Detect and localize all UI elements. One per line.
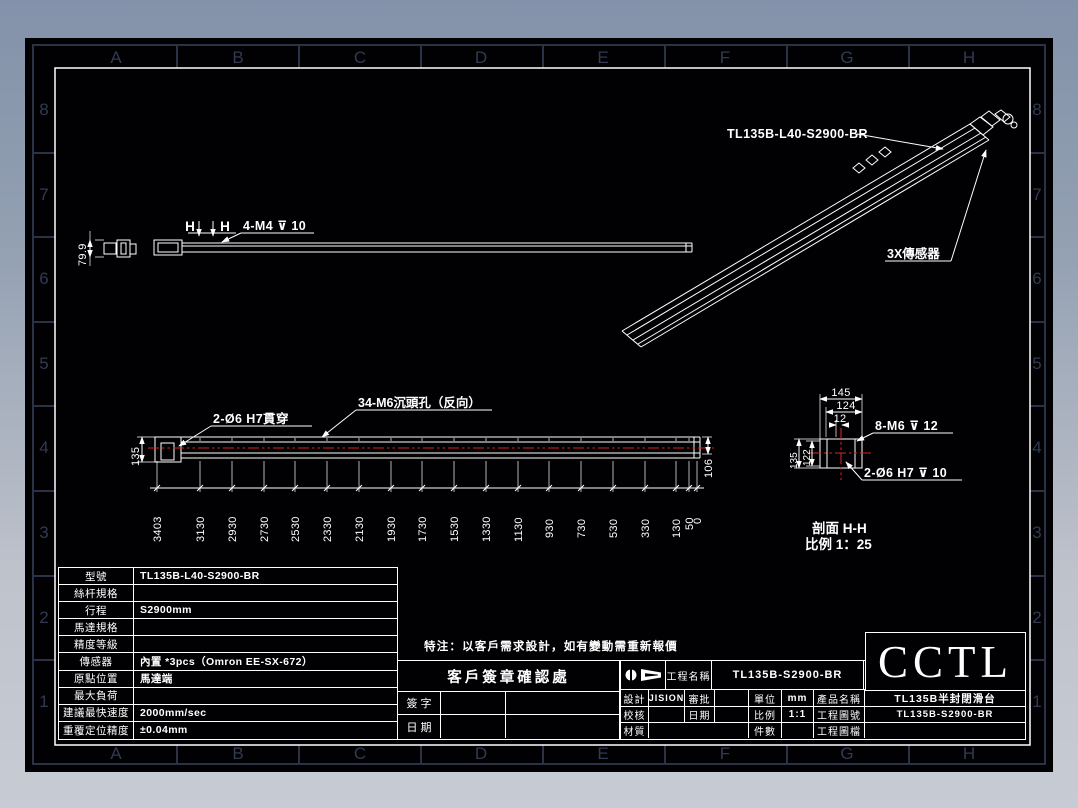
dim-1130: 1130 <box>513 517 525 542</box>
zone-row-2: 2 <box>39 608 48 627</box>
spec-value: S2900mm <box>134 602 397 618</box>
date-cell-wide <box>506 715 619 738</box>
iso-sensors <box>853 147 891 173</box>
dim-ext-106 <box>702 437 712 454</box>
note-4-m4-leader <box>222 233 241 242</box>
front-view: 135 106 2-Ø6 H7貫穿 34-M6沉頭孔（反向） 3403 3130… <box>130 395 715 542</box>
zone-row-8: 8 <box>39 100 48 119</box>
dim-chain-ext-lines <box>157 461 697 492</box>
zone-col-e2: E <box>597 744 608 763</box>
zone-col-h2: H <box>963 744 975 763</box>
sign-label: 簽 字 <box>398 692 441 714</box>
dim-2530: 2530 <box>290 516 302 542</box>
zone-col-a: A <box>110 48 122 67</box>
dim-2930: 2930 <box>227 516 239 542</box>
sign-cell <box>441 692 506 714</box>
spec-value <box>134 636 397 652</box>
company-logo: CCTL <box>865 632 1026 691</box>
dim-12: 12 <box>834 413 847 425</box>
product-name-label: 產品名稱 <box>814 690 865 706</box>
end-connector-outline <box>104 240 136 257</box>
table-row: 建議最快速度2000mm/sec <box>59 705 397 722</box>
zone-row-3r: 3 <box>1032 523 1041 542</box>
zone-row-1r: 1 <box>1032 692 1041 711</box>
design-value: JISION <box>649 690 685 706</box>
date-row: 日 期 <box>398 715 619 738</box>
zone-col-a2: A <box>110 744 122 763</box>
dim-930: 930 <box>544 519 556 538</box>
table-row: 精度等級 <box>59 636 397 653</box>
title-block-row-check: 校核 日期 比例 1:1 工程圖號 TL135B-S2900-BR <box>621 707 1025 723</box>
product-name-value: TL135B半封閉滑台 <box>865 690 1025 706</box>
zone-row-2r: 2 <box>1032 608 1041 627</box>
spec-label: 傳感器 <box>59 653 134 669</box>
third-angle-icon <box>623 665 663 685</box>
file-value <box>865 723 1025 738</box>
project-name-value: TL135B-S2900-BR <box>712 661 864 689</box>
rail-top-view <box>182 243 692 252</box>
zone-row-1: 1 <box>39 692 48 711</box>
iso-motor-knob <box>1011 122 1017 128</box>
dim-730: 730 <box>576 519 588 538</box>
date-cell <box>441 715 506 738</box>
zone-col-f: F <box>720 48 730 67</box>
table-row: 最大負荷 <box>59 688 397 705</box>
zone-row-6: 6 <box>39 269 48 288</box>
section-mark-h-left: H <box>185 219 195 234</box>
table-row: 原點位置馬達端 <box>59 671 397 688</box>
unit-label: 單位 <box>749 690 782 706</box>
zone-col-g: G <box>840 48 853 67</box>
dim-2130: 2130 <box>354 516 366 542</box>
date-label: 日期 <box>685 707 715 722</box>
spec-table: 型號TL135B-L40-S2900-BR 絲杆規格 行程S2900mm 馬達規… <box>58 567 398 740</box>
zone-col-c: C <box>354 48 366 67</box>
sign-cell-wide <box>506 692 619 714</box>
zone-col-d: D <box>475 48 487 67</box>
note-csk-hole: 34-M6沉頭孔（反向） <box>358 395 481 410</box>
spec-value: 馬達端 <box>134 671 397 687</box>
spec-value <box>134 585 397 601</box>
iso-sensor-leader <box>951 150 986 261</box>
dim-0: 0 <box>692 518 704 524</box>
zone-col-b2: B <box>232 744 243 763</box>
dim-1530: 1530 <box>449 516 461 542</box>
dim-124: 124 <box>836 400 855 412</box>
spec-value: TL135B-L40-S2900-BR <box>134 568 397 584</box>
scale-value: 1:1 <box>782 707 814 722</box>
approve-label: 審批 <box>685 690 715 706</box>
spec-value: 2000mm/sec <box>134 705 397 721</box>
date-label: 日 期 <box>398 715 441 738</box>
zone-row-8r: 8 <box>1032 100 1041 119</box>
iso-part-label: TL135B-L40-S2900-BR <box>727 127 868 141</box>
dim-ext-79 <box>95 240 104 257</box>
dwg-no-value: TL135B-S2900-BR <box>865 707 1025 722</box>
spec-label: 最大負荷 <box>59 688 134 704</box>
zone-row-4r: 4 <box>1032 438 1041 457</box>
spec-value <box>134 688 397 704</box>
dim-chain-values: 3403 3130 2930 2730 2530 2330 2130 1930 … <box>152 516 704 542</box>
special-note: 特注：以客戶需求設計，如有變動需重新報價 <box>424 638 678 654</box>
qty-value <box>782 723 814 738</box>
dim-106-front: 106 <box>703 459 715 478</box>
dim-3130: 3130 <box>195 516 207 542</box>
top-side-view: 79.9 H H 4-M4 ⊽ 10 <box>77 219 692 266</box>
zone-col-h: H <box>963 48 975 67</box>
dim-79-9: 79.9 <box>77 243 89 266</box>
table-row: 行程S2900mm <box>59 602 397 619</box>
spec-label: 型號 <box>59 568 134 584</box>
check-value <box>649 707 685 722</box>
dim-2330: 2330 <box>322 516 334 542</box>
dim-135-section: 135 <box>789 452 800 469</box>
zone-row-7r: 7 <box>1032 185 1041 204</box>
spec-label: 絲杆規格 <box>59 585 134 601</box>
spec-label: 精度等級 <box>59 636 134 652</box>
dim-1330: 1330 <box>481 516 493 542</box>
date-value <box>715 707 749 722</box>
signature-row: 簽 字 <box>398 692 619 715</box>
hole-ticks <box>200 438 689 441</box>
dwg-no-label: 工程圖號 <box>814 707 865 722</box>
cad-preview-page: A B C D E F G H A B C D E F G H 8 7 <box>0 0 1078 808</box>
note-through-hole: 2-Ø6 H7貫穿 <box>213 411 289 426</box>
spec-label: 原點位置 <box>59 671 134 687</box>
iso-part-leader <box>857 134 943 149</box>
title-block-row-design: 設計 JISION 審批 單位 mm 產品名稱 TL135B半封閉滑台 <box>621 690 1025 707</box>
project-name-label: 工程名稱 <box>666 661 712 689</box>
zone-row-5r: 5 <box>1032 354 1041 373</box>
zone-row-7: 7 <box>39 185 48 204</box>
zone-col-c2: C <box>354 744 366 763</box>
zone-row-5: 5 <box>39 354 48 373</box>
zone-col-d2: D <box>475 744 487 763</box>
spec-label: 行程 <box>59 602 134 618</box>
table-row: 馬達規格 <box>59 619 397 636</box>
note-csk-leader <box>322 410 356 437</box>
dim-122: 122 <box>802 449 813 466</box>
zone-row-4: 4 <box>39 438 48 457</box>
zone-row-6r: 6 <box>1032 269 1041 288</box>
section-caption: 剖面 H-H <box>812 520 867 536</box>
dim-145: 145 <box>831 387 850 399</box>
dim-330: 330 <box>640 519 652 538</box>
note-4-m4: 4-M4 ⊽ 10 <box>243 219 306 233</box>
dim-1930: 1930 <box>386 516 398 542</box>
table-row: 傳感器內置 *3pcs（Omron EE-SX-672） <box>59 653 397 670</box>
qty-label: 件數 <box>749 723 782 738</box>
zone-row-3: 3 <box>39 523 48 542</box>
approve-value <box>715 690 749 706</box>
table-row: 型號TL135B-L40-S2900-BR <box>59 568 397 585</box>
table-row: 重覆定位精度±0.04mm <box>59 722 397 739</box>
spec-label: 馬達規格 <box>59 619 134 635</box>
signature-title: 客戶簽章確認處 <box>398 661 619 692</box>
material-label: 材質 <box>621 723 649 738</box>
table-row: 絲杆規格 <box>59 585 397 602</box>
projection-symbol-icon <box>621 661 666 689</box>
zone-col-g2: G <box>840 744 853 763</box>
file-label: 工程圖檔 <box>814 723 865 738</box>
iso-rail <box>622 124 989 347</box>
spec-label: 重覆定位精度 <box>59 722 134 739</box>
section-view: 145 124 12 135 122 8-M6 ⊽ 12 2-Ø6 H7 ⊽ 1… <box>789 387 962 552</box>
dim-3403: 3403 <box>152 516 164 542</box>
section-mark-h-right: H <box>220 219 230 234</box>
dim-2730: 2730 <box>259 516 271 542</box>
title-block-row-material: 材質 件數 工程圖檔 <box>621 723 1025 738</box>
unit-value: mm <box>782 690 814 706</box>
design-label: 設計 <box>621 690 649 706</box>
scale-label: 比例 <box>749 707 782 722</box>
spec-value: ±0.04mm <box>134 722 397 739</box>
spec-value: 內置 *3pcs（Omron EE-SX-672） <box>134 653 397 669</box>
note-pin-leader <box>846 462 862 480</box>
spec-label: 建議最快速度 <box>59 705 134 721</box>
iso-sensor-label: 3X傳感器 <box>887 246 940 261</box>
dim-130: 130 <box>671 519 683 538</box>
spec-value <box>134 619 397 635</box>
dim-135-front: 135 <box>130 447 142 466</box>
isometric-view: TL135B-L40-S2900-BR 3X傳感器 <box>622 110 1017 347</box>
zone-col-b: B <box>232 48 243 67</box>
zone-col-f2: F <box>720 744 730 763</box>
note-8-m6-leader <box>857 433 873 441</box>
dim-1730: 1730 <box>417 516 429 542</box>
motor-top-view <box>154 240 182 255</box>
note-8-m6: 8-M6 ⊽ 12 <box>875 419 938 433</box>
check-label: 校核 <box>621 707 649 722</box>
note-through-leader <box>179 426 211 446</box>
note-pin-hole: 2-Ø6 H7 ⊽ 10 <box>864 466 947 480</box>
section-scale: 比例 1：25 <box>805 536 872 552</box>
signature-table: 客戶簽章確認處 簽 字 日 期 <box>397 660 620 740</box>
zone-col-e: E <box>597 48 608 67</box>
motor-front-view <box>155 437 181 462</box>
dim-530: 530 <box>608 519 620 538</box>
material-value <box>649 723 749 738</box>
